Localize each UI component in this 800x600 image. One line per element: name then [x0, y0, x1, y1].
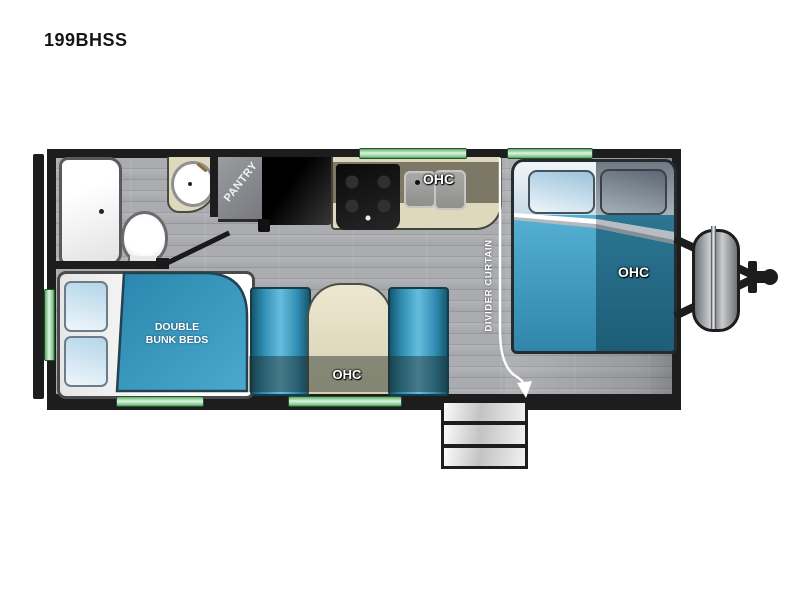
refrigerator: [262, 157, 332, 225]
stove-cooktop: [336, 164, 400, 230]
rear-bumper: [33, 154, 44, 399]
step-2: [444, 425, 525, 443]
bunk-bottom-window: [116, 396, 204, 407]
step-3: [444, 448, 525, 466]
bathroom-sink-drain: [188, 182, 192, 186]
kitchen-counter-knob: [415, 180, 420, 185]
entry-steps: [441, 400, 528, 469]
bathtub-drain: [99, 209, 104, 214]
bathroom-wall: [47, 261, 167, 269]
bunk-side-window: [44, 289, 55, 361]
bunk-beds-label: DOUBLE BUNK BEDS: [121, 321, 233, 347]
propane-tanks: [692, 229, 740, 332]
dinette-window: [288, 396, 402, 407]
bunk-pillow-bottom: [64, 336, 108, 387]
hitch-neck: [754, 271, 768, 283]
bed-pillow-right: [600, 169, 667, 215]
hitch-jack-post: [748, 261, 757, 293]
kitchen-window: [359, 148, 467, 159]
kitchen-ohc-label: OHC: [423, 171, 454, 187]
bed-pillow-left: [528, 170, 595, 214]
refrigerator-hinge: [258, 219, 270, 232]
step-1: [444, 403, 525, 421]
hitch-coupler: [762, 269, 778, 285]
bathroom-sink: [171, 161, 215, 207]
dinette-ohc-label: OHC: [325, 367, 369, 382]
page-title: 199BHSS: [44, 30, 128, 51]
divider-curtain-label: DIVIDER CURTAIN: [484, 234, 495, 338]
bunk-pillow-top: [64, 281, 108, 332]
bathroom-partition-wall: [210, 157, 218, 217]
bed: [511, 159, 677, 354]
floor-plan-page: 199BHSS PANTRY OHC OHC: [0, 0, 800, 600]
bed-ohc-label: OHC: [618, 264, 649, 280]
bathtub: [59, 157, 122, 266]
propane-tank-divider: [711, 226, 716, 329]
bedroom-window: [507, 148, 593, 159]
